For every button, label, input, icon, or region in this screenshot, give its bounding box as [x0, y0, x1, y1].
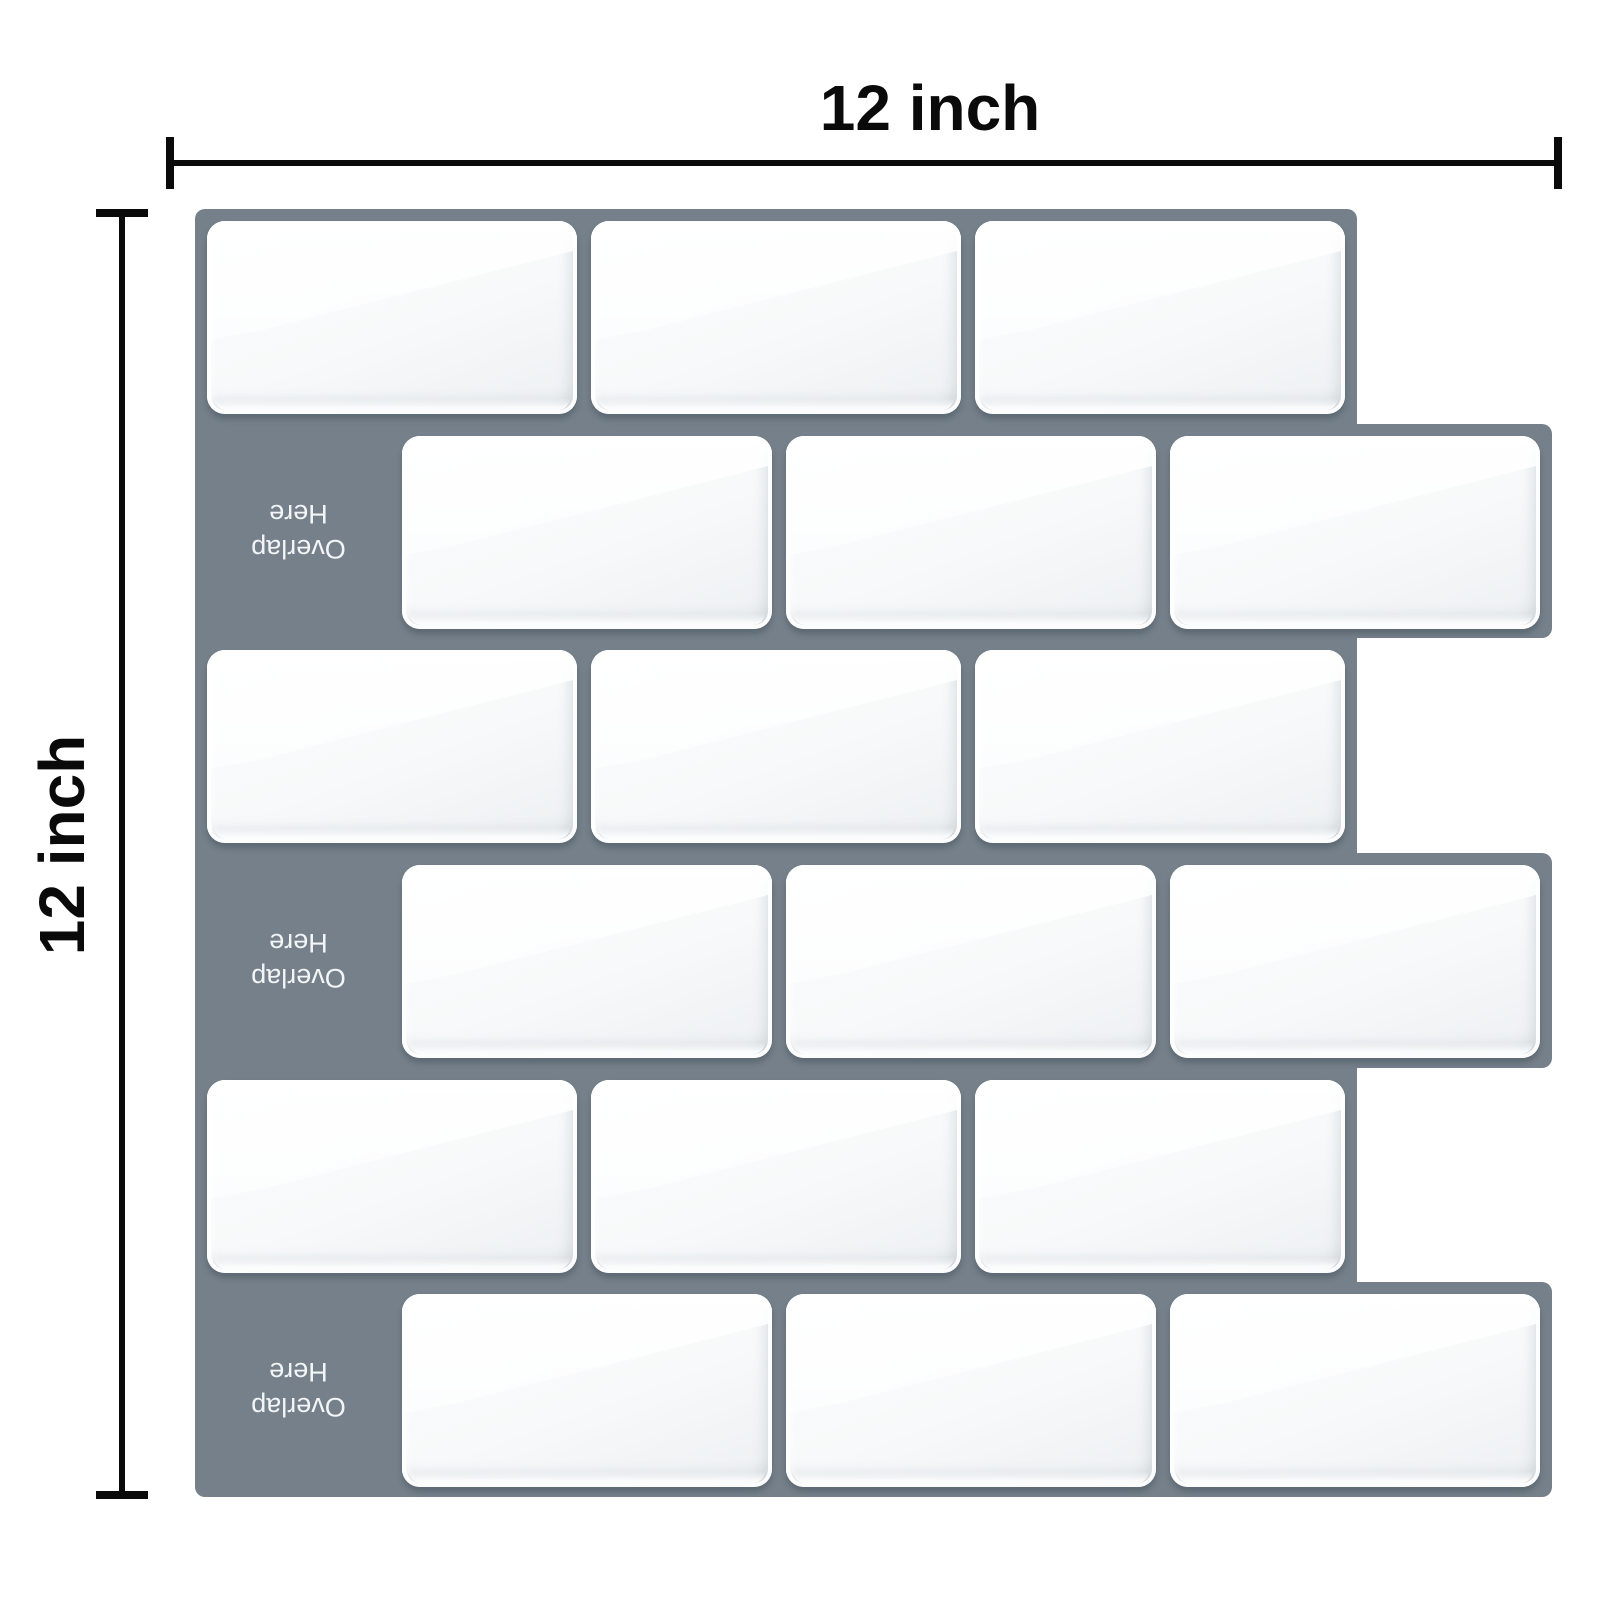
overlap-here-label: Overlap Here [195, 853, 402, 1067]
overlap-label-line2: Here [269, 496, 328, 531]
width-dimension-line [170, 160, 1558, 166]
height-dimension-top-cap [96, 209, 148, 217]
overlap-label-line1: Overlap [251, 960, 346, 995]
height-dimension-line [119, 213, 125, 1495]
subway-tile [786, 1294, 1156, 1487]
subway-tile [207, 650, 577, 843]
subway-tile [402, 436, 772, 629]
subway-tile [591, 221, 961, 414]
subway-tile [1170, 436, 1540, 629]
height-dimension-label: 12 inch [22, 545, 102, 1145]
subway-tile [402, 865, 772, 1058]
subway-tile [402, 1294, 772, 1487]
subway-tile [1170, 1294, 1540, 1487]
subway-tile [786, 436, 1156, 629]
subway-tile [591, 1080, 961, 1273]
subway-tile [975, 1080, 1345, 1273]
subway-tile [1170, 865, 1540, 1058]
subway-tile [207, 1080, 577, 1273]
tile-panel-dimension-diagram: 12 inch 12 inch Overlap Here Overlap Her… [0, 0, 1600, 1600]
overlap-here-label: Overlap Here [195, 424, 402, 638]
overlap-here-label: Overlap Here [195, 1282, 402, 1496]
width-dimension-right-cap [1554, 137, 1562, 189]
overlap-label-line2: Here [269, 1354, 328, 1389]
width-dimension-label: 12 inch [630, 76, 1230, 140]
subway-tile [975, 221, 1345, 414]
subway-tile [975, 650, 1345, 843]
subway-tile [207, 221, 577, 414]
overlap-label-line2: Here [269, 925, 328, 960]
subway-tile [786, 865, 1156, 1058]
overlap-label-line1: Overlap [251, 1389, 346, 1424]
subway-tile [591, 650, 961, 843]
height-dimension-bottom-cap [96, 1491, 148, 1499]
width-dimension-left-cap [166, 137, 174, 189]
overlap-label-line1: Overlap [251, 531, 346, 566]
